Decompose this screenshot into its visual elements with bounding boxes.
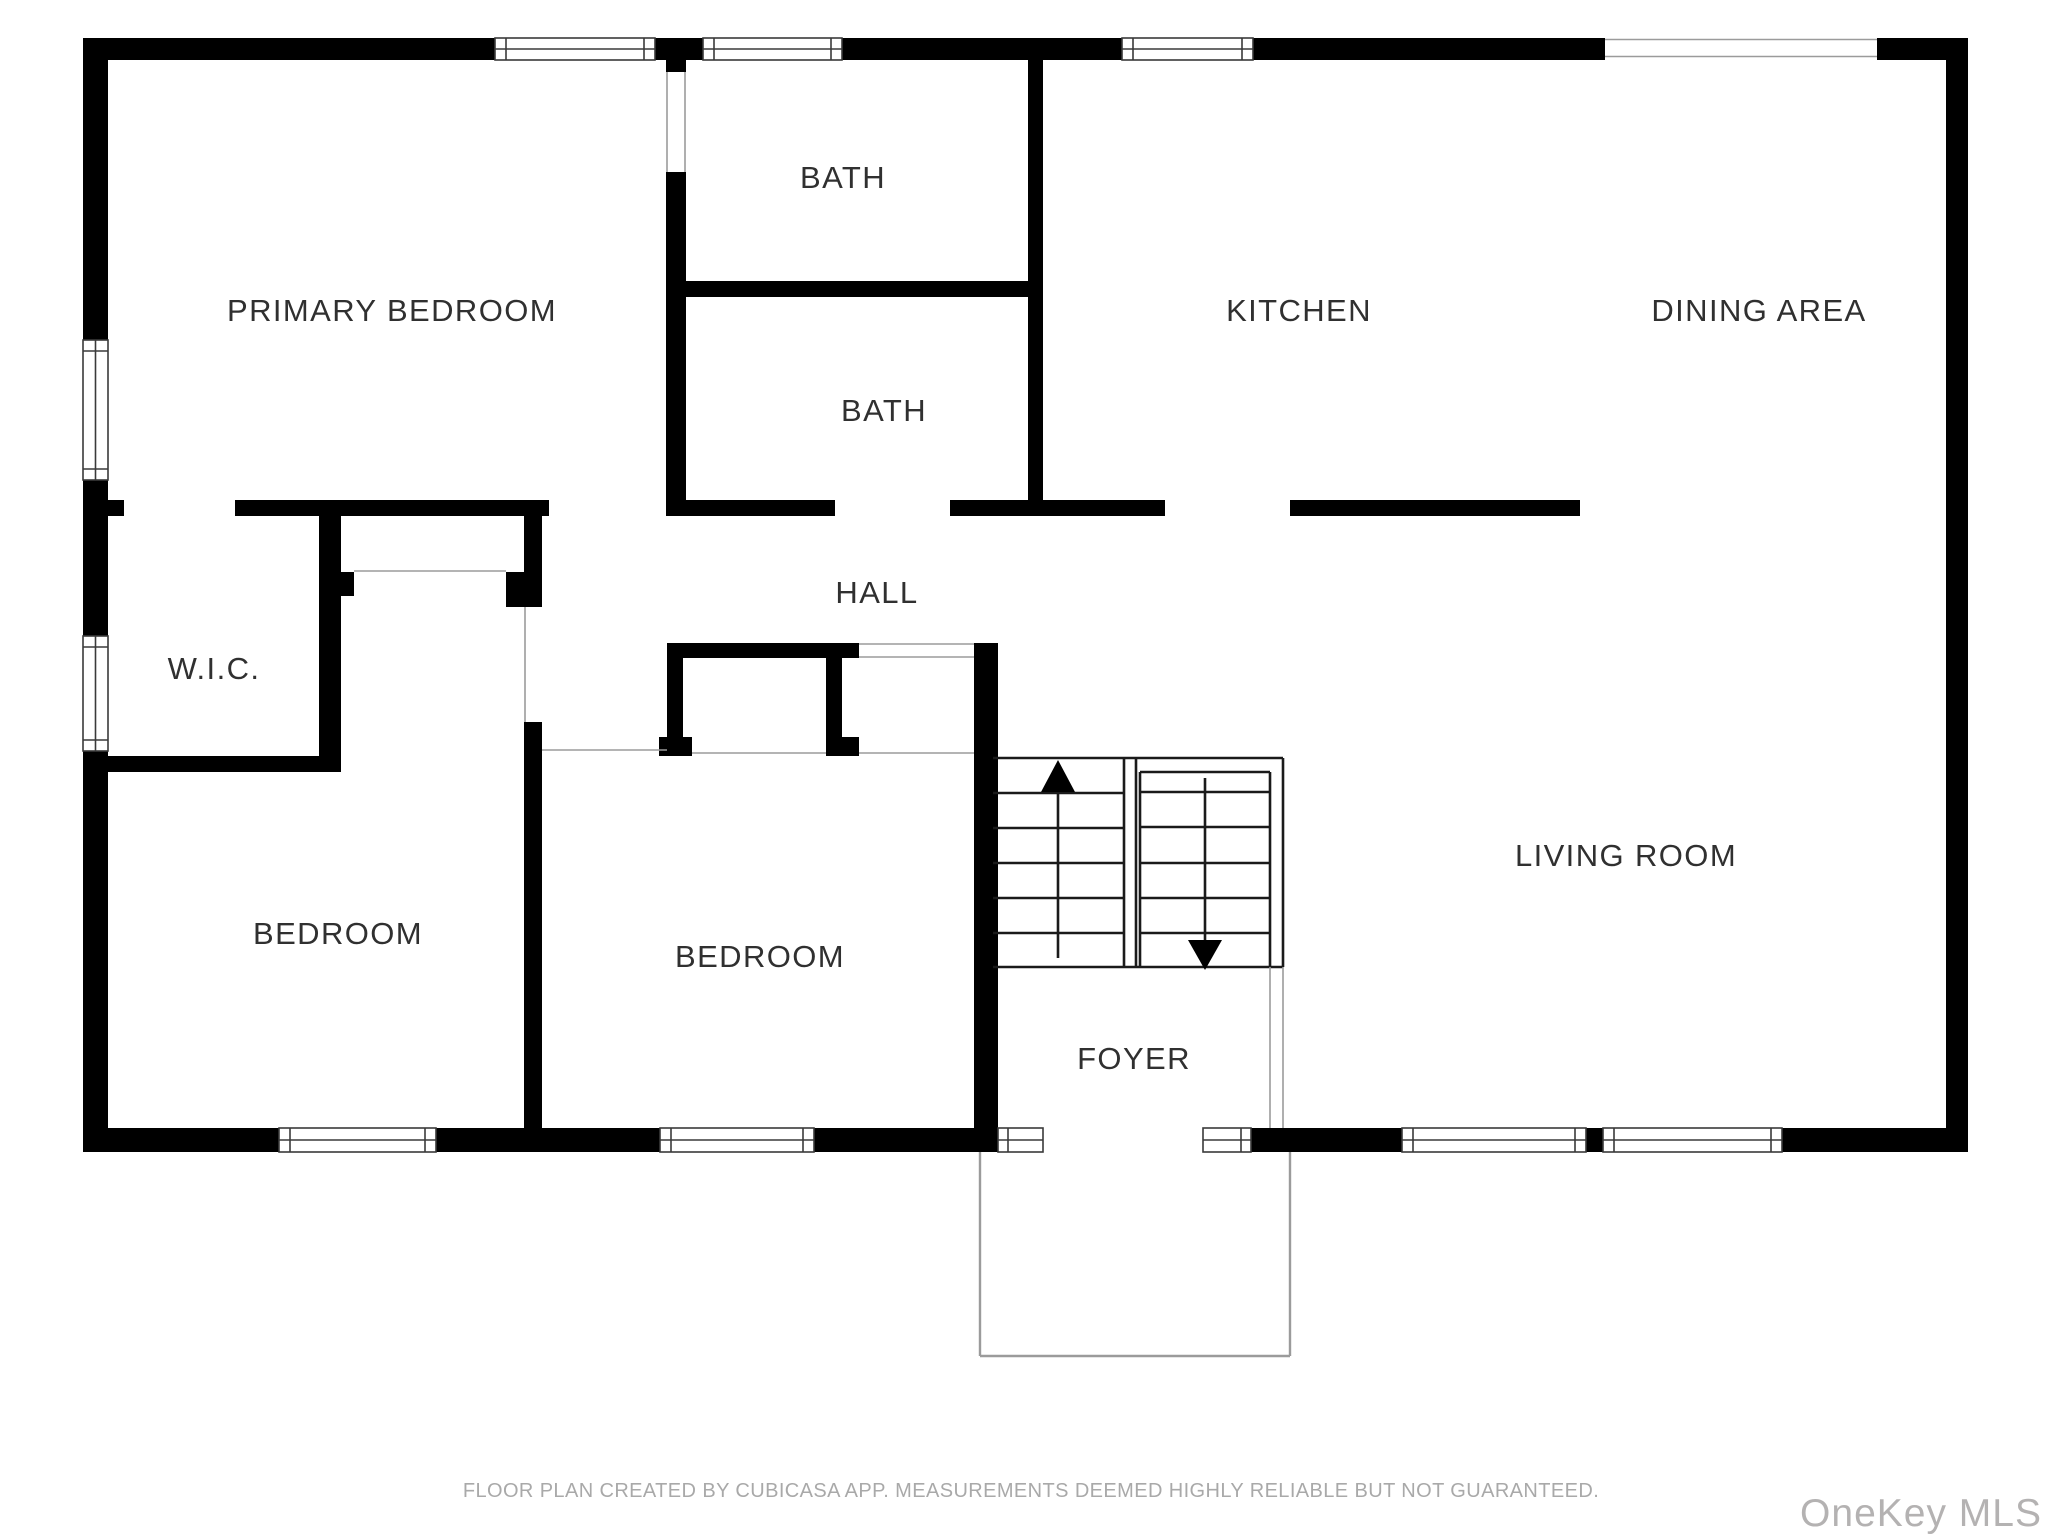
bedroom-left-door-jamb	[506, 572, 524, 607]
closet-mid-wall	[826, 658, 842, 737]
top-wall	[1253, 38, 1605, 60]
stairs-down-arrow-icon	[1188, 940, 1222, 970]
window	[495, 38, 655, 60]
right-wall	[1946, 38, 1968, 1152]
bottom-wall	[436, 1128, 660, 1152]
staircase	[993, 758, 1283, 970]
wic-south-wall	[105, 756, 341, 772]
foyer-and-stoop	[980, 967, 1290, 1356]
floor-plan-drawing: PRIMARY BEDROOM BATH BATH KITCHEN DINING…	[0, 0, 2048, 1536]
bedroom-divider-wall	[524, 516, 542, 607]
bedroom-left-door-jamb	[334, 572, 354, 596]
window	[1122, 38, 1253, 60]
window	[1603, 1128, 1782, 1152]
closet-left-wall	[667, 658, 683, 737]
window	[1203, 1128, 1251, 1152]
bottom-wall	[1251, 1128, 1402, 1152]
left-wall	[83, 38, 108, 340]
hall-north-wall	[235, 500, 549, 516]
left-wall	[83, 751, 108, 1152]
bath-divider-wall	[686, 281, 1028, 297]
room-label-dining-area: DINING AREA	[1651, 293, 1866, 328]
top-wall	[83, 38, 495, 60]
room-label-primary-bedroom: PRIMARY BEDROOM	[227, 293, 557, 328]
room-label-hall: HALL	[835, 575, 918, 610]
top-wall	[842, 38, 1122, 60]
hall-north-wall	[105, 500, 124, 516]
hall-north-wall	[950, 500, 1165, 516]
room-label-bath-bottom: BATH	[841, 393, 927, 428]
window	[279, 1128, 436, 1152]
bath-west-wall	[666, 172, 686, 516]
top-wall	[655, 38, 703, 60]
window	[83, 340, 108, 480]
bottom-wall	[1782, 1128, 1968, 1152]
closet-corner	[974, 643, 998, 658]
bedroom-middle-east-wall	[974, 658, 998, 1128]
hall-north-wall	[666, 500, 835, 516]
closet-north-bar	[667, 643, 859, 658]
closet-left-foot	[659, 737, 692, 756]
watermark: OneKey MLS	[1800, 1492, 2042, 1535]
bottom-wall	[814, 1128, 998, 1152]
closet-mid-foot	[826, 737, 859, 756]
window	[660, 1128, 814, 1152]
room-label-foyer: FOYER	[1077, 1041, 1191, 1076]
room-labels: PRIMARY BEDROOM BATH BATH KITCHEN DINING…	[168, 160, 1867, 1076]
wic-east-wall	[319, 516, 341, 772]
window	[703, 38, 842, 60]
outer-walls	[83, 38, 1968, 1152]
room-label-kitchen: KITCHEN	[1226, 293, 1372, 328]
bath-west-wall-stub	[666, 60, 686, 72]
window	[1402, 1128, 1586, 1152]
left-wall	[83, 480, 108, 636]
room-label-living-room: LIVING ROOM	[1515, 838, 1737, 873]
stairs-up-arrow-icon	[1041, 760, 1075, 792]
window	[83, 636, 108, 751]
bedroom-divider-wall	[524, 722, 542, 1128]
room-label-wic: W.I.C.	[168, 651, 261, 686]
room-label-bedroom-left: BEDROOM	[253, 916, 423, 951]
bottom-wall	[83, 1128, 279, 1152]
bottom-wall	[1586, 1128, 1603, 1152]
footer-disclaimer: FLOOR PLAN CREATED BY CUBICASA APP. MEAS…	[463, 1480, 1599, 1502]
window	[1605, 38, 1877, 60]
hall-north-wall	[1290, 500, 1580, 516]
floor-plan-page: PRIMARY BEDROOM BATH BATH KITCHEN DINING…	[0, 0, 2048, 1536]
room-label-bedroom-middle: BEDROOM	[675, 939, 845, 974]
window	[998, 1128, 1043, 1152]
kitchen-west-wall	[1028, 58, 1043, 516]
room-label-bath-top: BATH	[800, 160, 886, 195]
